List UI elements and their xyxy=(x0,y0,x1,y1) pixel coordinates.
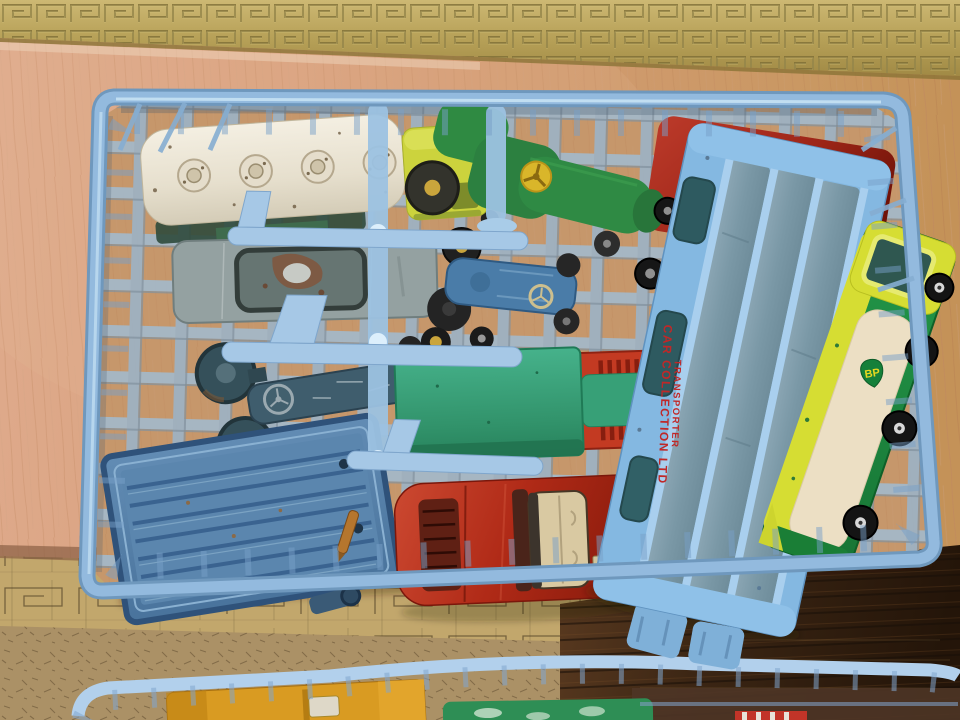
crate2-green-vehicle xyxy=(443,698,654,720)
scene: CAR COLLECTION LTD TRANSPORTER BP xyxy=(0,0,960,720)
crate2-truck-window xyxy=(309,696,340,718)
photo-toy-vehicle-crate: CAR COLLECTION LTD TRANSPORTER BP xyxy=(0,0,960,720)
bp-logo-text: BP xyxy=(864,367,881,381)
crate3-red-item xyxy=(735,711,807,720)
